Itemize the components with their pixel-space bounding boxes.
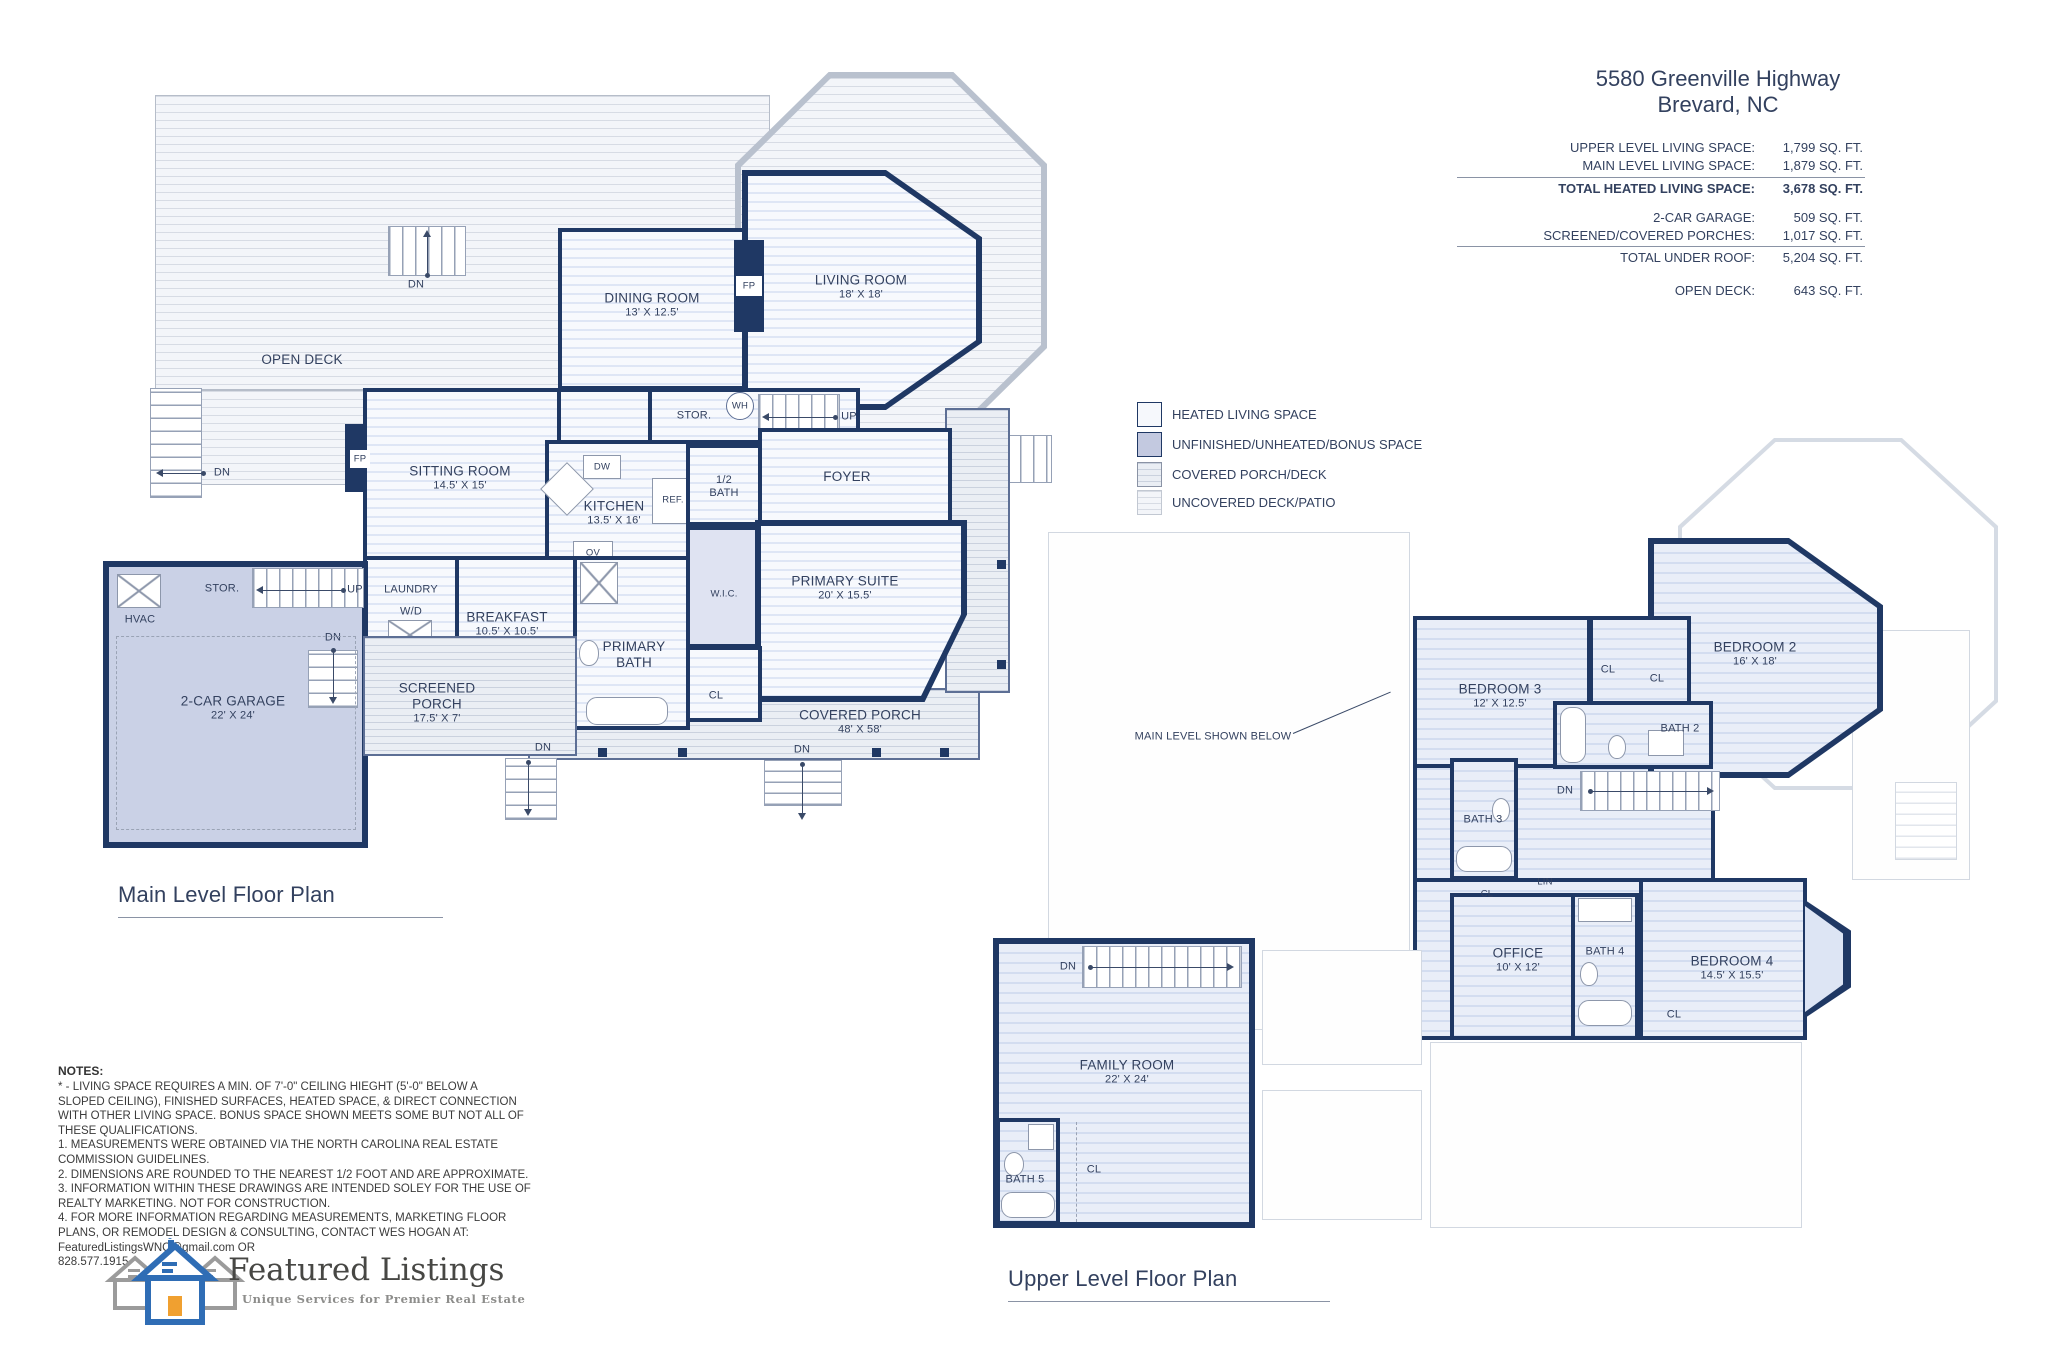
ghost-right-of-family bbox=[1262, 1090, 1422, 1220]
stairs-arrow bbox=[258, 590, 344, 591]
kitchen-label: KITCHEN13.5' X 16' bbox=[584, 499, 645, 528]
bathtub bbox=[1001, 1192, 1055, 1218]
area-value: 1,017 SQ. FT. bbox=[1763, 228, 1863, 243]
wd-label: W/D bbox=[400, 606, 422, 619]
hvac-unit bbox=[117, 574, 161, 608]
open-deck-label: OPEN DECK bbox=[261, 352, 342, 368]
bath4-label: BATH 4 bbox=[1583, 946, 1627, 959]
toilet bbox=[1580, 962, 1598, 986]
area-value: 3,678 SQ. FT. bbox=[1763, 181, 1863, 196]
address-line-1: 5580 Greenville Highway bbox=[1438, 66, 1998, 92]
stairs-arrow bbox=[1590, 791, 1712, 792]
bathtub bbox=[1560, 707, 1586, 763]
closet-dashed-line bbox=[1076, 1122, 1077, 1222]
area-label: 2-CAR GARAGE: bbox=[1443, 210, 1755, 225]
legend-swatch-unfinished bbox=[1137, 432, 1162, 457]
closet-label: CL bbox=[1481, 888, 1494, 899]
laundry-label: LAUNDRY bbox=[384, 584, 438, 597]
area-value: 5,204 SQ. FT. bbox=[1763, 250, 1863, 265]
primary-closet bbox=[686, 646, 762, 722]
up-label: UP bbox=[841, 411, 857, 424]
stairs-arrow bbox=[764, 417, 836, 418]
bathtub bbox=[1456, 846, 1512, 872]
area-value: 1,879 SQ. FT. bbox=[1763, 158, 1863, 173]
logo-tagline: Unique Services for Premier Real Estate bbox=[242, 1292, 525, 1306]
garage-door-dashed bbox=[116, 636, 356, 830]
stairs-arrow bbox=[1090, 967, 1232, 968]
legend-swatch-uncovered-deck bbox=[1137, 490, 1162, 515]
wh-label: WH bbox=[732, 400, 748, 411]
bath2-label: BATH 2 bbox=[1658, 723, 1702, 736]
porch-post bbox=[997, 560, 1006, 569]
closet-label: CL bbox=[1087, 1164, 1101, 1177]
sitting-label: SITTING ROOM14.5' X 15' bbox=[409, 464, 510, 493]
closet-label: CL bbox=[1601, 664, 1615, 677]
bath5-label: BATH 5 bbox=[1004, 1174, 1046, 1187]
main-level-title: Main Level Floor Plan bbox=[118, 882, 335, 908]
closet-label: CL bbox=[709, 690, 723, 703]
bath3-label: BATH 3 bbox=[1461, 814, 1505, 827]
area-label: TOTAL HEATED LIVING SPACE: bbox=[1443, 181, 1755, 196]
area-label: TOTAL UNDER ROOF: bbox=[1443, 250, 1755, 265]
hvac-label: HVAC bbox=[125, 614, 156, 627]
dn-label: DN bbox=[1557, 785, 1573, 798]
storage-label: STOR. bbox=[205, 583, 239, 596]
stairs-arrow bbox=[427, 232, 428, 276]
screened-porch-label: SCREENED PORCH17.5' X 7' bbox=[377, 681, 497, 726]
dining-label: DINING ROOM13' X 12.5' bbox=[604, 291, 699, 320]
floor-plan-sheet: { "header": { "address_line1": "5580 Gre… bbox=[0, 0, 2048, 1365]
area-value: 1,799 SQ. FT. bbox=[1763, 140, 1863, 155]
porch-ghost-bottom bbox=[1430, 1042, 1802, 1228]
fp-label: FP bbox=[354, 453, 367, 464]
legend-swatch-heated bbox=[1137, 402, 1162, 427]
primary-bath-label: PRIMARY BATH bbox=[596, 639, 672, 671]
walk-in-closet bbox=[686, 526, 762, 648]
legend-swatch-covered-porch bbox=[1137, 462, 1162, 487]
porch-post bbox=[678, 748, 687, 757]
half-bath-label: 1/2 BATH bbox=[700, 474, 748, 500]
toilet bbox=[1608, 735, 1626, 759]
foyer-label: FOYER bbox=[823, 469, 871, 485]
hall bbox=[545, 388, 655, 446]
legend-label: UNCOVERED DECK/PATIO bbox=[1172, 495, 1335, 510]
fp-label: FP bbox=[743, 280, 756, 291]
area-label: UPPER LEVEL LIVING SPACE: bbox=[1443, 140, 1755, 155]
office-label: OFFICE10' X 12' bbox=[1493, 946, 1544, 975]
stairs-arrow bbox=[802, 764, 803, 818]
legend-label: HEATED LIVING SPACE bbox=[1172, 407, 1317, 422]
bedroom2-label: BEDROOM 216' X 18' bbox=[1714, 640, 1797, 669]
dn-label: DN bbox=[408, 279, 424, 292]
breakfast-label: BREAKFAST10.5' X 10.5' bbox=[466, 610, 547, 639]
double-vanity bbox=[1578, 898, 1632, 922]
logo-name: Featured Listings bbox=[228, 1252, 504, 1288]
dn-label: DN bbox=[535, 742, 551, 755]
dn-label: DN bbox=[794, 744, 810, 757]
bathtub bbox=[1578, 1000, 1632, 1026]
stairs-ghost bbox=[1895, 782, 1957, 860]
porch-post bbox=[872, 748, 881, 757]
closet-label: CL bbox=[1650, 673, 1664, 686]
up-label: UP bbox=[347, 584, 363, 597]
ghost-right-of-family bbox=[1262, 950, 1422, 1065]
linen-label: LIN bbox=[1537, 876, 1552, 887]
primary-suite-label: PRIMARY SUITE20' X 15.5' bbox=[791, 574, 898, 603]
address-line-2: Brevard, NC bbox=[1438, 92, 1998, 118]
title-underline bbox=[1008, 1301, 1330, 1302]
bedroom4-label: BEDROOM 414.5' X 15.5' bbox=[1691, 954, 1774, 983]
dn-label: DN bbox=[1060, 961, 1076, 974]
sink-vanity bbox=[1028, 1124, 1054, 1150]
family-room-label: FAMILY ROOM22' X 24' bbox=[1080, 1058, 1175, 1087]
deck-stairs-left bbox=[150, 388, 202, 498]
legend-label: UNFINISHED/UNHEATED/BONUS SPACE bbox=[1172, 437, 1422, 452]
porch-post bbox=[997, 660, 1006, 669]
ref-label: REF. bbox=[662, 494, 683, 505]
porch-post bbox=[940, 748, 949, 757]
title-underline bbox=[118, 917, 443, 918]
primary-suite bbox=[761, 526, 961, 696]
area-value: 643 SQ. FT. bbox=[1763, 283, 1863, 298]
garage-label: 2-CAR GARAGE22' X 24' bbox=[181, 694, 285, 723]
upper-level-title: Upper Level Floor Plan bbox=[1008, 1266, 1237, 1292]
main-level-shown-below-note: MAIN LEVEL SHOWN BELOW bbox=[1135, 731, 1292, 744]
stairs-arrow bbox=[528, 762, 529, 814]
wic-label: W.I.C. bbox=[710, 588, 737, 599]
bathtub bbox=[586, 697, 668, 725]
dw-label: DW bbox=[594, 461, 610, 472]
storage-label: STOR. bbox=[677, 410, 711, 423]
table-rule bbox=[1457, 246, 1865, 247]
area-value: 509 SQ. FT. bbox=[1763, 210, 1863, 225]
living-label: LIVING ROOM18' X 18' bbox=[815, 273, 907, 302]
legend-label: COVERED PORCH/DECK bbox=[1172, 467, 1327, 482]
stairs-arrow bbox=[158, 473, 204, 474]
notes-title: NOTES: bbox=[58, 1064, 103, 1078]
area-label: SCREENED/COVERED PORCHES: bbox=[1443, 228, 1755, 243]
covered-porch-label: COVERED PORCH48' X 58' bbox=[799, 708, 921, 737]
area-label: OPEN DECK: bbox=[1443, 283, 1755, 298]
closet-label: CL bbox=[1667, 1009, 1681, 1022]
bedroom3-label: BEDROOM 312' X 12.5' bbox=[1459, 682, 1542, 711]
shower bbox=[580, 562, 618, 604]
porch-post bbox=[598, 748, 607, 757]
table-rule bbox=[1457, 177, 1865, 178]
toilet bbox=[1004, 1152, 1024, 1176]
area-label: MAIN LEVEL LIVING SPACE: bbox=[1443, 158, 1755, 173]
dn-label: DN bbox=[214, 467, 230, 480]
